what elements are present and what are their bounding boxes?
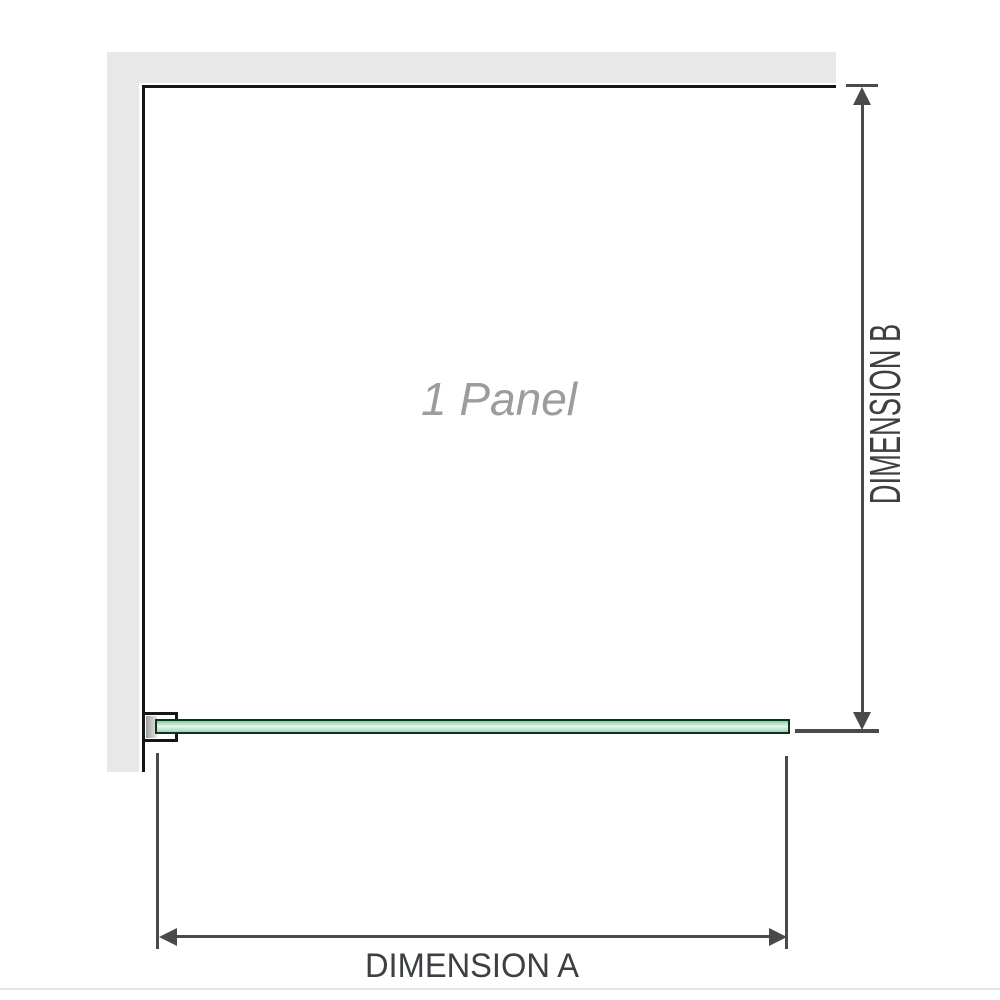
wall-left-band xyxy=(107,52,139,772)
dim-a-line xyxy=(168,935,776,938)
panel-outline xyxy=(142,85,836,772)
panel-count-label: 1 Panel xyxy=(349,374,649,424)
dim-a-arrow-right-icon xyxy=(769,928,787,946)
dim-a-arrow-left-icon xyxy=(159,928,177,946)
dim-a-extension-right xyxy=(785,756,788,949)
footer-rule xyxy=(0,988,1000,990)
panel-dimension-diagram: 1 Panel DIMENSION B DIMENSION A xyxy=(0,0,1000,1000)
dim-a-label: DIMENSION A xyxy=(280,948,664,984)
glass-panel xyxy=(155,719,790,734)
dim-a-extension-left xyxy=(156,753,159,949)
dim-b-label: DIMENSION B xyxy=(864,315,908,513)
dim-b-arrow-up-icon xyxy=(853,87,871,105)
wall-top-band xyxy=(107,52,836,83)
dim-b-arrow-down-icon xyxy=(853,712,871,730)
